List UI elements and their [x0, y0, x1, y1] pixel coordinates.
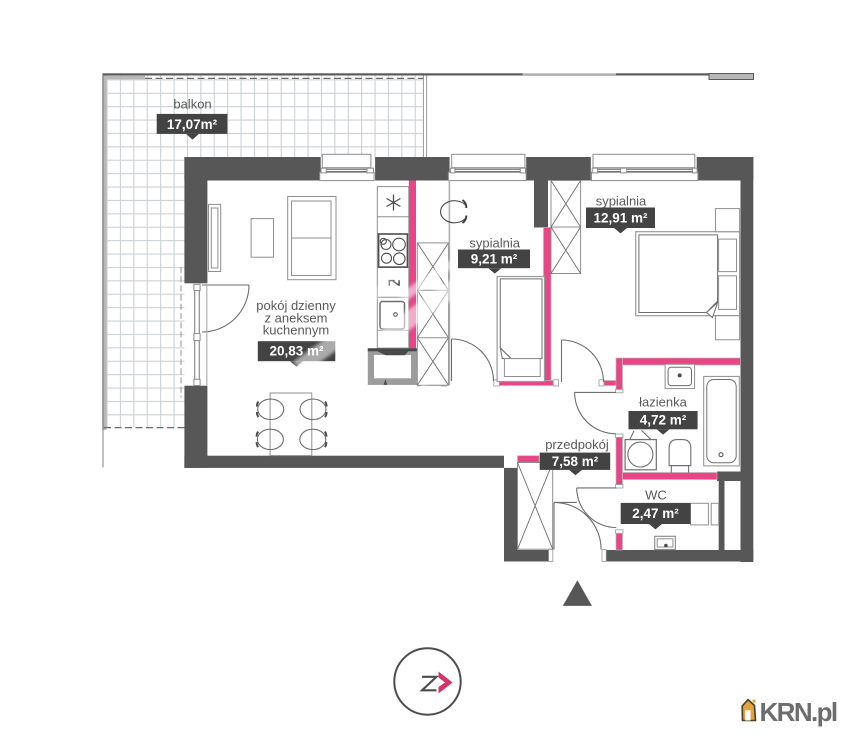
svg-text:balkon: balkon	[173, 97, 211, 112]
svg-text:KRN.pl: KRN.pl	[760, 697, 837, 727]
svg-text:9,21 m²: 9,21 m²	[471, 252, 518, 267]
svg-text:przedpokój: przedpokój	[545, 437, 609, 452]
svg-text:sypialnia: sypialnia	[469, 235, 520, 250]
svg-text:17,07m²: 17,07m²	[167, 117, 218, 132]
svg-text:7,58 m²: 7,58 m²	[552, 454, 599, 469]
svg-text:4,72 m²: 4,72 m²	[640, 413, 687, 428]
svg-text:łazienka: łazienka	[639, 394, 687, 409]
svg-text:sypialnia: sypialnia	[596, 193, 647, 208]
svg-text:12,91 m²: 12,91 m²	[593, 211, 648, 226]
svg-text:kuchennym: kuchennym	[263, 322, 329, 337]
svg-text:2,47 m²: 2,47 m²	[632, 506, 679, 521]
svg-text:WC: WC	[645, 487, 667, 502]
